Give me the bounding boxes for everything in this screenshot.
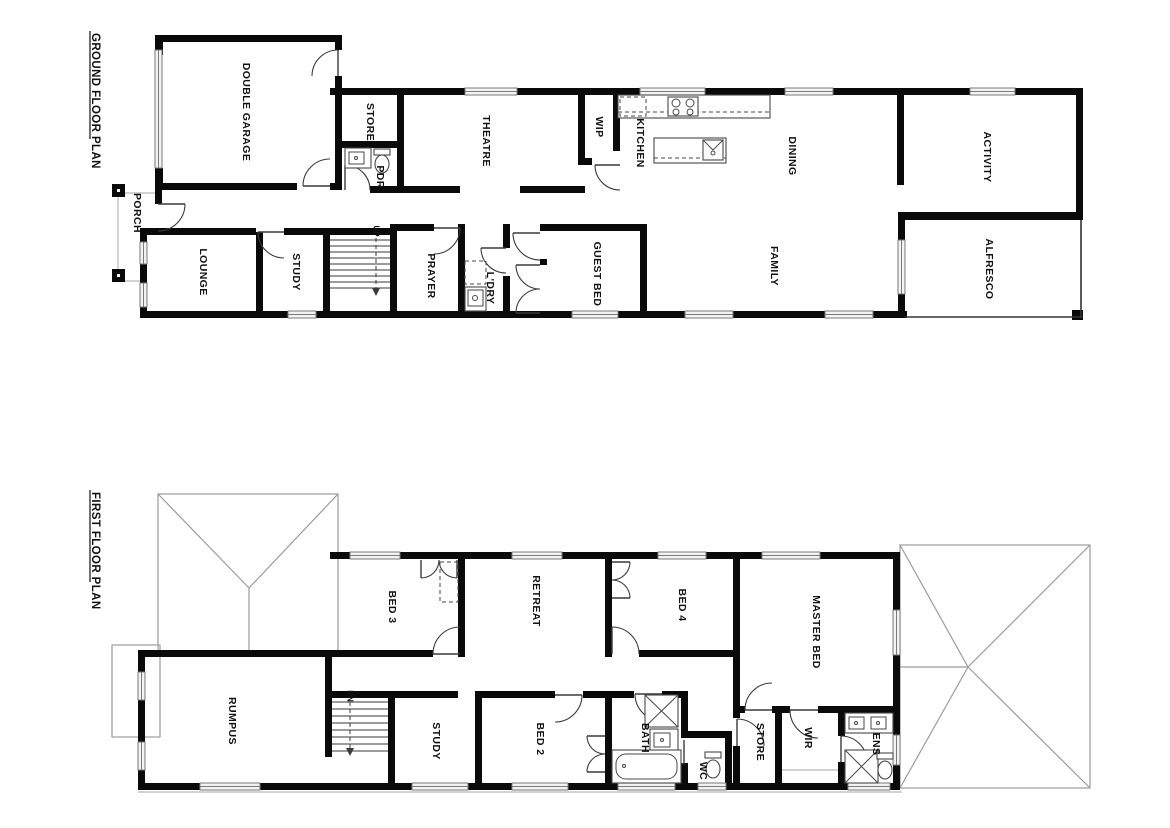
roof-over-porch (112, 645, 160, 737)
bed2-robe-door (587, 736, 605, 754)
washer-space (465, 261, 486, 284)
room-label-family: FAMILY (768, 246, 780, 286)
first-floor-plan: FIRST FLOOR PLAN (89, 490, 1090, 792)
bed2-door (555, 695, 582, 722)
room-label-lounge: LOUNGE (197, 248, 209, 295)
room-label-bed4: BED 4 (676, 589, 688, 622)
bed2-robe-door (587, 754, 605, 772)
first-labels: BED 3 RETREAT BED 4 MASTER BED RUMPUS ST… (226, 575, 882, 780)
bed4-robe-door (612, 562, 630, 580)
floor-plan-page: GROUND FLOOR PLAN (0, 0, 1170, 828)
cooktop (668, 97, 698, 116)
room-label-porch: PORCH (131, 193, 143, 233)
room-label-theatre: THEATRE (480, 115, 492, 167)
room-label-store-first: STORE (754, 723, 766, 761)
bed3-robe (440, 562, 458, 602)
room-label-alfresco: ALFRESCO (983, 239, 995, 300)
room-label-study-first: STUDY (430, 722, 442, 760)
prayer-door (434, 228, 460, 254)
wc-toilet (705, 752, 721, 758)
stairs-up-label: UP (372, 225, 381, 237)
roof-over-garage (158, 494, 338, 656)
linen-door-right (516, 289, 540, 313)
pdr-door (345, 165, 370, 190)
first-stairs: DN (332, 690, 388, 756)
roof-outlines (112, 494, 1090, 792)
bed4-robe-door (612, 580, 630, 598)
pdr-toilet (374, 149, 390, 155)
room-label-store: STORE (364, 103, 376, 141)
room-label-bed2: BED 2 (534, 723, 546, 756)
garage-hall-door (303, 159, 330, 186)
room-label-wc: WC (697, 762, 709, 780)
entry-door (158, 204, 185, 231)
room-label-master-bed: MASTER BED (810, 595, 822, 668)
room-label-bath: BATH (639, 723, 651, 753)
kitchen-hall-door (595, 165, 620, 190)
master-bed-door (745, 683, 772, 710)
first-floor-title: FIRST FLOOR PLAN (89, 492, 101, 610)
room-label-activity: ACTIVITY (981, 131, 993, 182)
room-label-ens: ENS (870, 733, 882, 756)
first-walls (138, 552, 900, 790)
room-label-laundry: L'DRY (484, 272, 496, 305)
ground-floor-plan: GROUND FLOOR PLAN (89, 31, 1083, 320)
room-label-study: STUDY (290, 253, 302, 291)
room-label-pdr: PDR (374, 165, 386, 188)
room-label-guest-bed: GUEST BED (591, 242, 603, 307)
room-label-rumpus: RUMPUS (226, 697, 238, 745)
floor-plan-drawing: GROUND FLOOR PLAN (0, 0, 1170, 828)
room-label-bed3: BED 3 (386, 591, 398, 624)
first-windows (138, 552, 900, 790)
room-label-kitchen: KITCHEN (634, 118, 646, 167)
room-label-wip: WIP (593, 116, 605, 137)
bed4-door (612, 627, 639, 654)
bed3-robe-door (421, 560, 439, 578)
guest-bed-door (513, 233, 540, 260)
garage-store-door (312, 50, 338, 76)
room-label-wir: WIR (802, 727, 814, 749)
stairs-dn-label: DN (346, 690, 355, 702)
room-label-retreat: RETREAT (530, 575, 542, 627)
ground-floor-title: GROUND FLOOR PLAN (89, 33, 101, 169)
room-label-double-garage: DOUBLE GARAGE (240, 63, 252, 162)
ground-fixtures (345, 95, 770, 311)
ground-stairs: UP (330, 225, 390, 296)
room-label-prayer: PRAYER (425, 253, 437, 298)
ground-walls (140, 35, 1083, 320)
laundry-door (481, 248, 506, 273)
bed3-robe-door (439, 560, 457, 578)
bed3-door (433, 627, 460, 654)
room-label-dining: DINING (786, 136, 798, 175)
linen-door-left (516, 265, 540, 289)
